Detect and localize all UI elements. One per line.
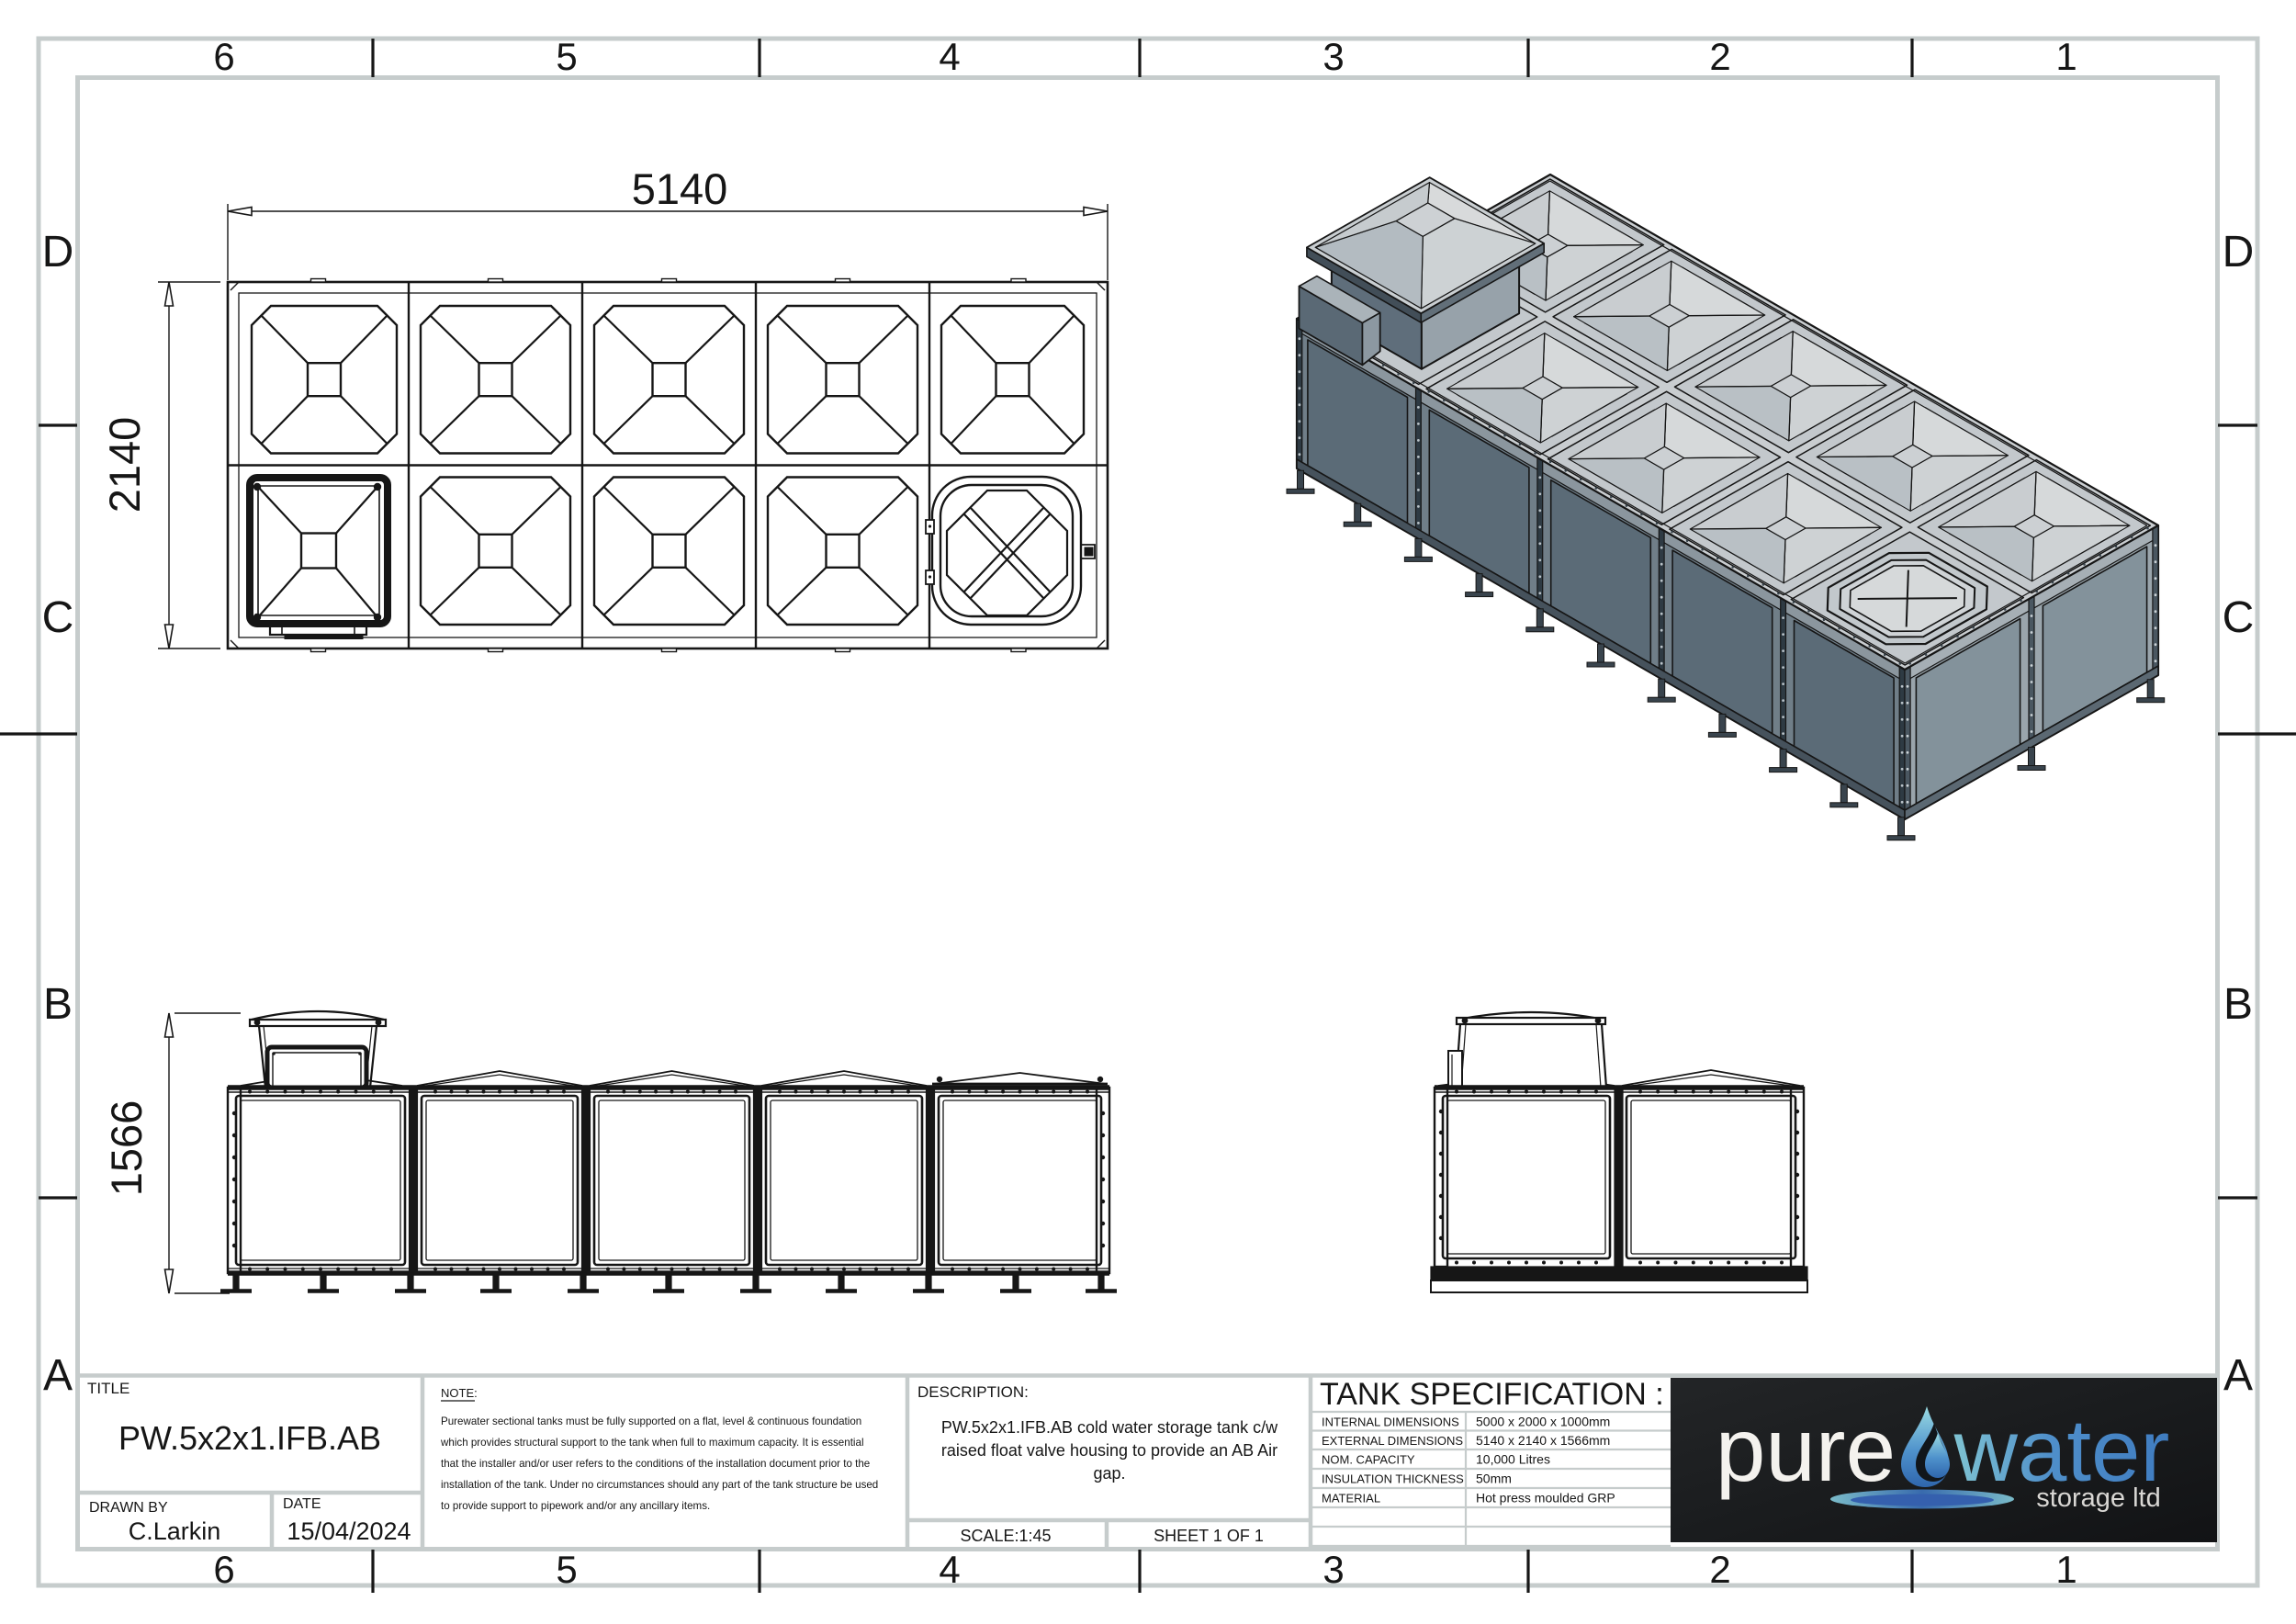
svg-text:2: 2 [1709,1548,1730,1591]
svg-text:A: A [2223,1351,2253,1400]
svg-text:6: 6 [213,1548,234,1591]
svg-text:1: 1 [2055,1548,2077,1591]
svg-text:EXTERNAL DIMENSIONS: EXTERNAL DIMENSIONS [1322,1434,1463,1448]
svg-text:D: D [2223,228,2255,276]
svg-text:5000 x 2000 x 1000mm: 5000 x 2000 x 1000mm [1476,1415,1610,1429]
svg-text:10,000 Litres: 10,000 Litres [1476,1452,1550,1467]
svg-text:3: 3 [1322,35,1344,78]
svg-text:D: D [42,228,74,276]
svg-text:C: C [2223,593,2255,642]
svg-text:5140 x 2140 x 1566mm: 5140 x 2140 x 1566mm [1476,1433,1610,1448]
svg-text:Purewater sectional tanks must: Purewater sectional tanks must be fully … [441,1415,861,1427]
svg-text:Hot press moulded GRP: Hot press moulded GRP [1476,1491,1615,1506]
svg-text:INTERNAL DIMENSIONS: INTERNAL DIMENSIONS [1322,1415,1459,1429]
svg-text:NOM. CAPACITY: NOM. CAPACITY [1322,1453,1415,1467]
svg-text:pure: pure [1716,1399,1896,1500]
svg-text:DATE: DATE [283,1496,321,1512]
svg-text:2: 2 [1709,35,1730,78]
svg-text:1: 1 [2055,35,2077,78]
svg-text:DESCRIPTION:: DESCRIPTION: [917,1383,1029,1401]
svg-text:installation of the tank. Unde: installation of the tank. Under no circu… [441,1479,878,1491]
svg-text:INSULATION THICKNESS: INSULATION THICKNESS [1322,1472,1464,1486]
svg-text:4: 4 [939,35,960,78]
svg-text:5: 5 [556,35,577,78]
svg-text:PW.5x2x1.IFB.AB cold water sto: PW.5x2x1.IFB.AB cold water storage tank … [941,1418,1278,1437]
svg-text:which provides structural supp: which provides structural support to the… [440,1437,864,1449]
svg-text:TITLE: TITLE [87,1380,129,1397]
svg-text:that the installer and/or user: that the installer and/or user refers to… [441,1458,870,1470]
svg-text:4: 4 [939,1548,960,1591]
svg-text:DRAWN BY: DRAWN BY [89,1500,168,1516]
svg-text:NOTE:: NOTE: [441,1386,478,1400]
svg-text:TANK SPECIFICATION :: TANK SPECIFICATION : [1320,1377,1664,1412]
svg-text:50mm: 50mm [1476,1472,1512,1486]
svg-text:A: A [43,1351,73,1400]
svg-text:3: 3 [1322,1548,1344,1591]
svg-text:B: B [43,980,73,1029]
svg-text:C.Larkin: C.Larkin [129,1517,221,1545]
svg-text:2140: 2140 [100,417,149,513]
svg-text:SHEET 1 OF 1: SHEET 1 OF 1 [1154,1527,1264,1545]
svg-text:B: B [2223,980,2253,1029]
svg-text:1566: 1566 [102,1100,151,1197]
svg-text:6: 6 [213,35,234,78]
svg-text:raised float valve housing to: raised float valve housing to provide an… [941,1441,1277,1460]
svg-text:15/04/2024: 15/04/2024 [287,1517,411,1545]
svg-text:storage ltd: storage ltd [2036,1483,2160,1513]
svg-text:5: 5 [556,1548,577,1591]
svg-text:SCALE:1:45: SCALE:1:45 [960,1527,1051,1545]
svg-text:gap.: gap. [1093,1464,1125,1483]
svg-text:5140: 5140 [632,164,728,213]
svg-text:to provide support to pipework: to provide support to pipework and/or an… [441,1500,710,1512]
svg-text:PW.5x2x1.IFB.AB: PW.5x2x1.IFB.AB [118,1419,381,1457]
svg-text:C: C [42,593,74,642]
svg-text:MATERIAL: MATERIAL [1322,1492,1380,1506]
